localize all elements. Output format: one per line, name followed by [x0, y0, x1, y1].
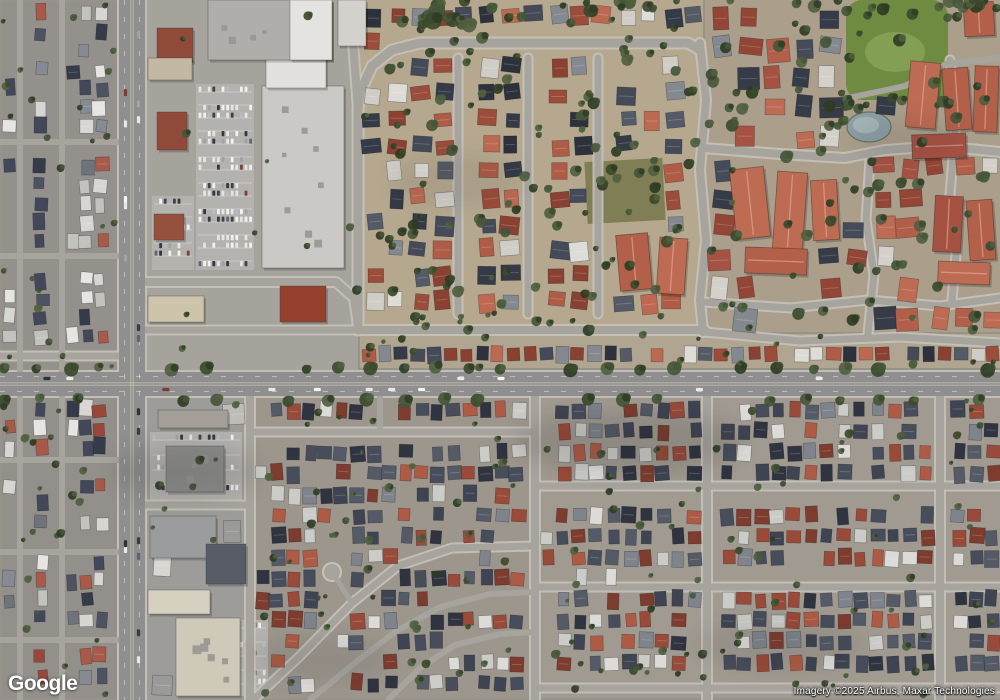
google-logo[interactable]: Google: [8, 672, 77, 696]
imagery-attribution: Imagery ©2025 Airbus, Maxar Technologies: [794, 686, 995, 697]
satellite-map-canvas[interactable]: Google Imagery ©2025 Airbus, Maxar Techn…: [0, 0, 1000, 700]
aerial-imagery: [0, 0, 1000, 700]
